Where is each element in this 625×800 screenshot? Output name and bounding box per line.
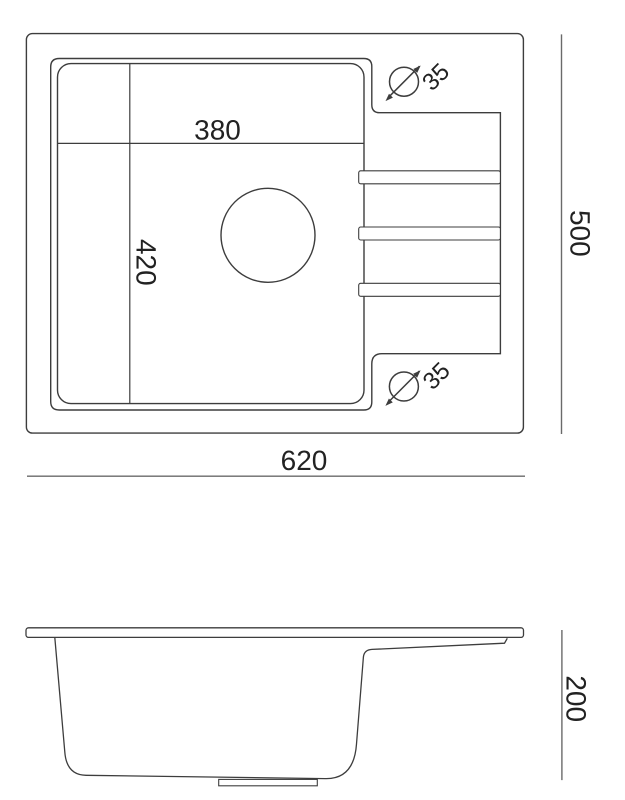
svg-text:500: 500	[565, 210, 596, 257]
svg-text:35: 35	[417, 58, 455, 96]
svg-text:420: 420	[130, 239, 161, 286]
svg-text:620: 620	[281, 445, 328, 476]
svg-text:200: 200	[561, 675, 592, 722]
svg-text:380: 380	[194, 115, 241, 146]
svg-text:35: 35	[418, 357, 456, 395]
